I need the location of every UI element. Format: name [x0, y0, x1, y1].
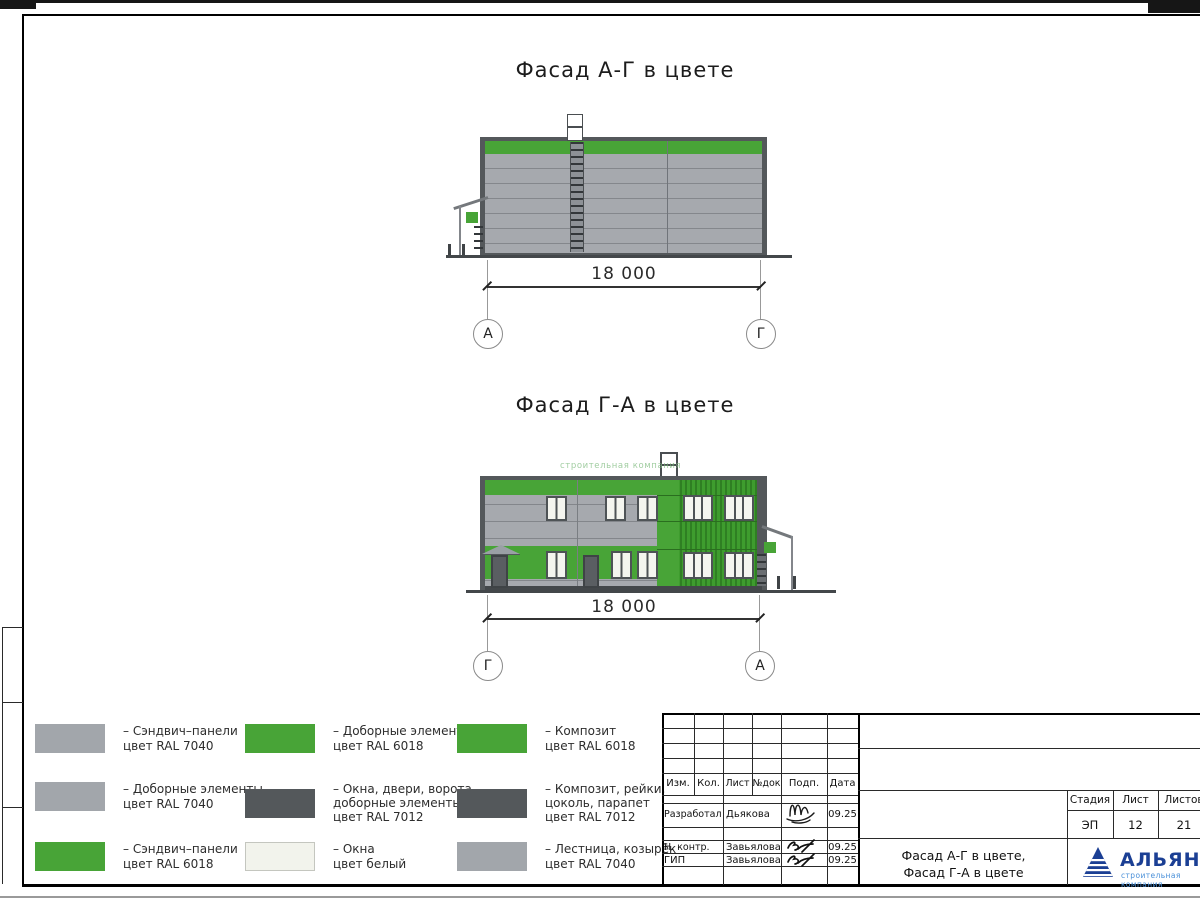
facade-ga-panel-joint [577, 480, 578, 586]
facade-ga-green-band-top [485, 480, 657, 495]
tb-name: Завьялова [726, 842, 781, 853]
margin-box-divider-3 [2, 807, 23, 808]
extension-line [760, 260, 761, 319]
legend-label: цвет RAL 7040 [123, 797, 263, 811]
tb-role: ГИП [664, 855, 685, 866]
drawing-sheet: Фасад А-Г в цвете 18 000 А Г Фасад Г-А в… [0, 0, 1200, 900]
tb-name: Дьякова [726, 809, 770, 820]
legend-label: – Доборные элементы [123, 782, 263, 796]
facade-ga-green-box [764, 542, 776, 553]
facade-ag-green-box [466, 212, 478, 223]
signature-icon [784, 838, 826, 853]
dimension-line [487, 286, 761, 288]
window [546, 496, 567, 521]
tb-stage-label: Стадия [1067, 794, 1113, 806]
tb-line [662, 853, 858, 854]
tb-border-top [662, 713, 1200, 715]
window [683, 495, 713, 521]
legend-label: доборные элементы [333, 796, 476, 810]
legend-label: цвет RAL 7040 [123, 739, 238, 753]
color-swatch [245, 724, 315, 753]
tb-line [662, 743, 858, 744]
tb-line [662, 866, 858, 867]
legend-item: – Доборные элементыцвет RAL 7040 [35, 782, 263, 811]
panel-line [485, 504, 657, 505]
facade-ag-ladder-cage [567, 114, 583, 141]
tb-col-data: Дата [827, 778, 858, 789]
color-swatch [457, 789, 527, 818]
paper-bottom-edge [0, 896, 1200, 898]
axis-letter: Г [757, 326, 766, 342]
composite-line [657, 549, 757, 550]
axis-letter: А [755, 658, 765, 674]
color-swatch [35, 782, 105, 811]
facade-ag-downpipe [459, 206, 461, 256]
tb-doc-title-line2: Фасад Г-А в цвете [860, 864, 1067, 881]
frame-top [22, 14, 1200, 16]
tb-line [1067, 810, 1200, 811]
entrance-door [491, 555, 508, 588]
legend-label: цвет RAL 7040 [545, 857, 676, 871]
facade-ag-green-band [485, 141, 762, 154]
tb-name: Завьялова [726, 855, 781, 866]
alliance-logo-subtitle: строительная компания [1121, 871, 1200, 889]
window [605, 496, 626, 521]
window [637, 551, 658, 579]
tb-line [858, 790, 1200, 791]
legend-label: – Окна [333, 842, 406, 856]
bollard [777, 576, 780, 589]
window [724, 552, 754, 579]
legend-label: – Композит, рейки, [545, 782, 665, 796]
frame-bottom [22, 884, 1200, 887]
tb-date: 09.25 [828, 855, 857, 866]
tb-date: 09.25 [828, 842, 857, 853]
legend-label: – Лестница, козырёк [545, 842, 676, 856]
facade-ag-title: Фасад А-Г в цвете [440, 58, 810, 82]
tb-line [858, 838, 1200, 839]
tb-line [858, 748, 1200, 749]
tb-sheets-label: Листов [1158, 794, 1200, 806]
legend-item: – Лестница, козырёкцвет RAL 7040 [457, 842, 676, 871]
tb-line [662, 803, 858, 804]
legend-label: – Композит [545, 724, 636, 738]
legend-item: – Композит, рейки,цоколь, парапетцвет RA… [457, 782, 665, 824]
legend-label: цвет RAL 6018 [333, 739, 473, 753]
color-swatch [245, 842, 315, 871]
facade-ga-dimension: 18 000 [524, 597, 724, 617]
tb-line [662, 827, 858, 828]
facade-ag-panel-joint [667, 141, 668, 253]
dimension-line [487, 618, 760, 620]
alliance-logo-name: АЛЬЯНС [1120, 849, 1200, 871]
tb-line [662, 773, 858, 774]
panel-line [485, 521, 657, 522]
window [546, 551, 567, 579]
composite-line [657, 521, 757, 522]
axis-letter: Г [484, 658, 493, 674]
bollard [793, 576, 796, 589]
color-swatch [245, 789, 315, 818]
axis-marker: А [473, 319, 503, 349]
facade-ag-dimension: 18 000 [524, 264, 724, 284]
legend-label: – Сэндвич–панели [123, 724, 238, 738]
color-swatch [457, 842, 527, 871]
extension-line [759, 595, 760, 651]
legend-item: – Сэндвич–панелицвет RAL 7040 [35, 724, 238, 753]
legend-label: – Сэндвич–панели [123, 842, 238, 856]
tb-line [662, 795, 858, 796]
legend-label: цвет RAL 7012 [545, 810, 665, 824]
extension-line [487, 595, 488, 651]
tb-col-list: Лист [723, 778, 752, 789]
logo-watermark: строительная компания [560, 461, 681, 471]
tb-col-ndok: №док [752, 778, 781, 789]
tb-doc-title-line1: Фасад А-Г в цвете, [860, 847, 1067, 864]
paper-corner-mark-left [0, 0, 36, 9]
facade-ag-ladder-cage-bar [568, 126, 582, 128]
facade-ag-roof-ladder [570, 142, 584, 252]
tb-doc-title: Фасад А-Г в цвете, Фасад Г-А в цвете [860, 847, 1067, 881]
legend-item: – Композитцвет RAL 6018 [457, 724, 636, 753]
alliance-logo-icon [1082, 846, 1114, 878]
tb-stage-value: ЭП [1067, 818, 1113, 832]
tb-line [662, 728, 858, 729]
legend-label: – Доборные элементы [333, 724, 473, 738]
margin-box-divider-2 [2, 702, 23, 703]
entrance-door [583, 555, 599, 588]
paper-top-edge [0, 0, 1200, 3]
tb-sheets-value: 21 [1158, 818, 1200, 832]
legend-label: цвет RAL 7012 [333, 810, 476, 824]
facade-ag-ground-line [446, 255, 792, 258]
window [683, 552, 713, 579]
facade-ga-ground-line [466, 590, 836, 593]
frame-left [22, 14, 24, 886]
tb-col-izm: Изм. [662, 778, 694, 789]
facade-ag-corner-rungs [474, 226, 483, 253]
tb-col-podp: Подп. [781, 778, 827, 789]
margin-box-divider-1 [2, 627, 23, 628]
signature-icon [782, 796, 826, 826]
axis-letter: А [483, 326, 493, 342]
facade-ga-title: Фасад Г-А в цвете [440, 393, 810, 417]
tb-line [662, 758, 858, 759]
tb-role: Н. контр. [664, 842, 710, 853]
color-swatch [35, 842, 105, 871]
paper-corner-mark-right [1148, 0, 1200, 13]
margin-box-left-line [2, 627, 3, 884]
tb-line [723, 713, 724, 885]
window [724, 495, 754, 521]
door-canopy-base [482, 554, 520, 556]
legend-item: – Доборные элементыцвет RAL 6018 [245, 724, 473, 753]
axis-marker: Г [473, 651, 503, 681]
color-swatch [457, 724, 527, 753]
panel-line [485, 538, 657, 539]
legend-label: цвет белый [333, 857, 406, 871]
axis-marker: Г [746, 319, 776, 349]
legend-item: – Окна, двери, ворота,доборные элементыц… [245, 782, 476, 824]
tb-role: Разработал [664, 809, 722, 820]
color-swatch [35, 724, 105, 753]
panel-line [485, 580, 657, 581]
window [611, 551, 632, 579]
legend-label: цвет RAL 6018 [545, 739, 636, 753]
legend-label: – Окна, двери, ворота, [333, 782, 476, 796]
signature-icon [784, 852, 826, 867]
facade-ga-corner-rungs [757, 554, 766, 586]
tb-line [662, 840, 858, 841]
legend-label: цоколь, парапет [545, 796, 665, 810]
extension-line [487, 260, 488, 319]
tb-sheet-label: Лист [1113, 794, 1158, 806]
legend-label: цвет RAL 6018 [123, 857, 238, 871]
tb-date: 09.25 [828, 809, 857, 820]
axis-marker: А [745, 651, 775, 681]
window [637, 496, 658, 521]
tb-sheet-value: 12 [1113, 818, 1158, 832]
tb-col-kol: Кол. [694, 778, 723, 789]
legend-item: – Окнацвет белый [245, 842, 406, 871]
facade-ag-panels [485, 154, 762, 253]
legend-item: – Сэндвич–панелицвет RAL 6018 [35, 842, 238, 871]
